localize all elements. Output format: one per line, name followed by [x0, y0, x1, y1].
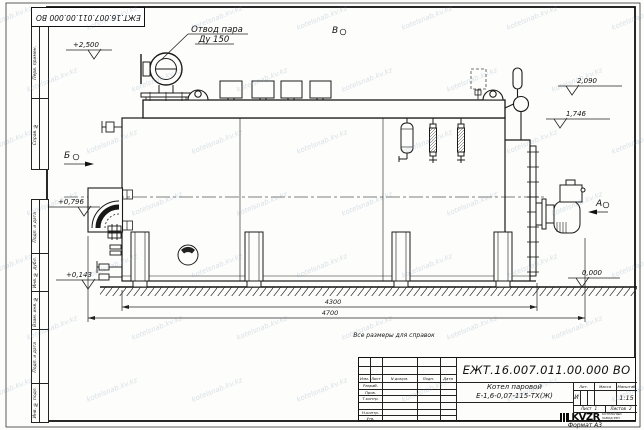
col-list: Лист [370, 374, 382, 382]
product-name-line1: Котел паровой [487, 383, 542, 392]
reference-note: Все размеры для справок [348, 332, 440, 339]
rear-motor [536, 180, 585, 233]
margin-cell-vzam-inv: Взам. инв. № [31, 291, 49, 331]
burner [88, 188, 133, 232]
margin-label: Инв. № подл. [33, 387, 38, 418]
ground [100, 287, 637, 296]
scale-value: 1:15 [616, 390, 637, 405]
col-ndoc: N докум. [382, 374, 417, 382]
margin-label: Взам. инв. № [33, 296, 38, 327]
rear-safety-valve [505, 68, 529, 140]
boiler-body [122, 118, 539, 281]
lit-label: Лит. [573, 382, 594, 390]
margin-label: Справ. № [33, 123, 38, 145]
steam-outlet-text2: Ду 150 [198, 35, 230, 45]
company-cell: KVZR КОТЕЛЬНЫЙ ЗАВОД РЭП [545, 412, 637, 422]
row-utv: Утв. [359, 415, 382, 422]
drum-valve-boxes [220, 81, 331, 100]
view-v-label: В [332, 26, 338, 36]
elev-plus2500: +2,500 [73, 41, 99, 49]
col-data: Дата [440, 374, 456, 382]
lit-value: И [573, 390, 580, 405]
scale-label: Масштаб [616, 382, 637, 390]
corner-stamp-text: ЕЖТ.16.007.011.00.000 ВО [36, 13, 141, 22]
steam-drum [143, 100, 505, 118]
margin-label: Перв. примен. [33, 46, 38, 80]
margin-label: Подп. и дата [33, 212, 38, 243]
elev-zero: 0,000 [582, 269, 603, 277]
row-razrab: Разраб. [359, 382, 382, 389]
margin-cell-perv-primen: Перв. примен. [31, 25, 49, 100]
elev-2090: 2,090 [577, 77, 598, 85]
product-name-line2: Е-1,6-0,07-115-ТХ(Ж) [476, 392, 553, 401]
steam-outlet-valve [141, 53, 191, 101]
steam-outlet-text1: Отвод пара [191, 25, 243, 35]
dim-4700: 4700 [322, 309, 339, 317]
sheets-label: Листов [610, 406, 626, 411]
view-b-label: Б [64, 151, 70, 161]
corner-stamp: ЕЖТ.16.007.011.00.000 ВО [31, 7, 145, 27]
view-a-label: А [595, 199, 602, 209]
sheet-cell: Лист 1 [573, 405, 605, 412]
dim-4300: 4300 [325, 298, 342, 306]
margin-cell-podp-data-2: Подп. и дата [31, 329, 49, 385]
view-labels: В Б А [64, 26, 609, 215]
row-tkontr: Т.контр. [359, 395, 382, 402]
margin-label: Подп. и дата [33, 342, 38, 373]
margin-cell-inv-podl: Инв. № подл. [31, 383, 49, 423]
product-name: Котел паровой Е-1,6-0,07-115-ТХ(Ж) [456, 382, 573, 402]
format-label: Формат А3 [540, 422, 630, 429]
company-line2: ЗАВОД РЭП [602, 417, 622, 421]
margin-label: Инв. № дубл. [33, 257, 38, 288]
kvzr-logo-text: KVZR [571, 412, 599, 422]
elev-plus0796: +0,796 [58, 198, 84, 206]
sheets-value: 2 [629, 406, 632, 411]
elev-1746: 1,746 [566, 110, 587, 118]
title-block: Изм. Лист N докум. Подп. Дата Разраб. Пр… [358, 357, 636, 421]
water-level-gauges [399, 118, 465, 163]
sheets-cell: Листов 2 [605, 405, 637, 412]
sheet-label: Лист [581, 406, 592, 411]
margin-cell-podp-data-1: Подп. и дата [31, 199, 49, 255]
company-subtext: КОТЕЛЬНЫЙ ЗАВОД РЭП [602, 413, 622, 421]
title-doc-number: ЕЖТ.16.007.011.00.000 ВО [456, 358, 637, 382]
col-podp: Подп. [417, 374, 440, 382]
manhole [178, 245, 198, 265]
margin-cell-sprav-no: Справ. № [31, 98, 49, 170]
sheet-value: 1 [594, 406, 597, 411]
drawing-sheet: 4300 4700 +2,500 2,090 1,746 +0,796 +0,1… [0, 0, 644, 430]
elev-plus0143: +0,143 [66, 271, 92, 279]
mass-label: Масса [594, 382, 616, 390]
support-legs [131, 232, 512, 287]
col-izm: Изм. [359, 374, 370, 382]
kvzr-logo-icon [560, 413, 569, 422]
margin-cell-inv-dubl: Инв. № дубл. [31, 253, 49, 293]
